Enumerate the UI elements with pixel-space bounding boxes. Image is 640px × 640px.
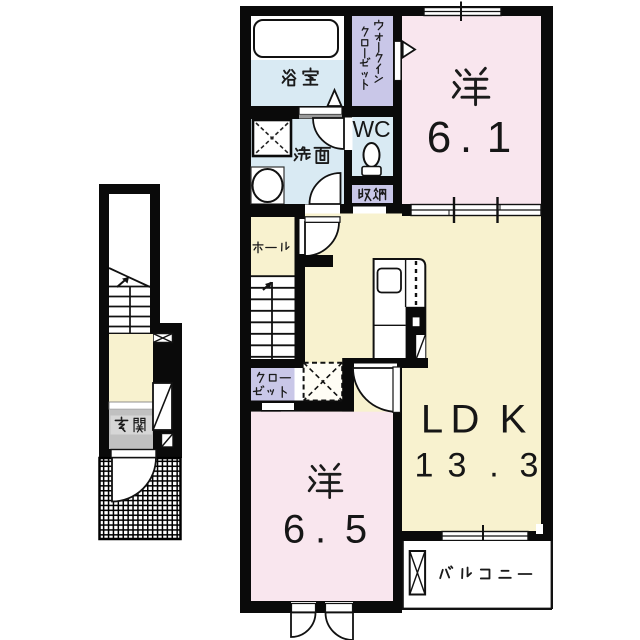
svg-text:5: 5 xyxy=(345,508,367,552)
svg-text:D: D xyxy=(451,398,480,442)
svg-text:WC: WC xyxy=(352,116,390,142)
svg-text:.: . xyxy=(315,508,326,552)
svg-text:6: 6 xyxy=(427,113,451,162)
svg-text:K: K xyxy=(500,398,527,442)
svg-text:6: 6 xyxy=(283,508,305,552)
svg-text:3: 3 xyxy=(448,446,467,484)
svg-text:L: L xyxy=(421,398,443,442)
svg-text:1: 1 xyxy=(415,446,434,484)
svg-text:.: . xyxy=(489,446,498,484)
svg-text:3: 3 xyxy=(520,446,539,484)
svg-text:1: 1 xyxy=(487,113,511,162)
svg-text:.: . xyxy=(460,113,472,162)
